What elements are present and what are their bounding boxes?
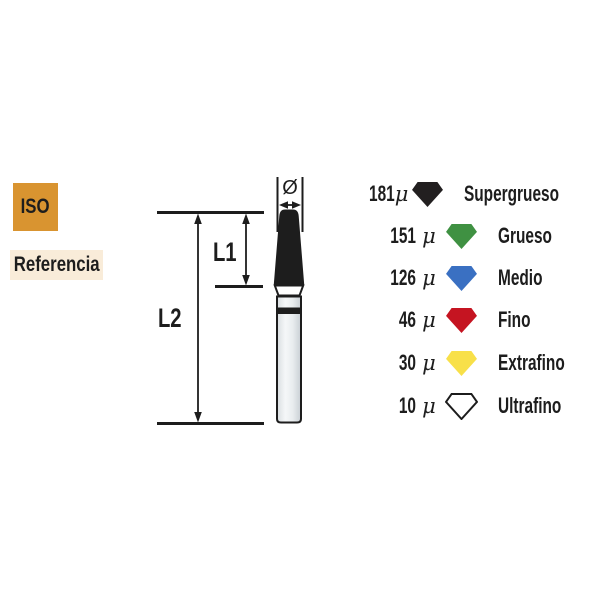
l2-dimension-label: L2 <box>145 303 195 334</box>
grit-label: Supergrueso <box>464 181 559 207</box>
grit-value: 151 <box>375 223 416 249</box>
grit-value: 46 <box>375 307 416 333</box>
legend-row-extrafino: 30 μ Extrafino <box>358 342 600 384</box>
bur-neck <box>275 286 303 296</box>
micron-unit: μ <box>416 308 442 332</box>
l1-dimension-label: L1 <box>200 237 250 268</box>
legend-row-ultrafino: 10 μ Ultrafino <box>358 385 600 427</box>
diamond-icon <box>445 265 478 292</box>
figure-canvas: ISO Referencia <box>0 0 600 600</box>
bur-shank-band <box>277 308 302 315</box>
diamond-icon <box>445 307 478 334</box>
bur-shank <box>277 297 301 423</box>
diamond-icon <box>411 181 444 208</box>
grit-label: Grueso <box>498 223 552 249</box>
legend-row-grueso: 151 μ Grueso <box>358 215 600 257</box>
grit-label: Medio <box>498 265 542 291</box>
legend-row-fino: 46 μ Fino <box>358 299 600 341</box>
micron-unit: μ <box>416 266 442 290</box>
diamond-icon <box>445 350 478 377</box>
micron-unit: μ <box>416 351 442 375</box>
micron-unit: μ <box>416 224 442 248</box>
grit-value: 30 <box>375 350 416 376</box>
micron-unit: μ <box>416 394 442 418</box>
micron-unit: μ <box>395 182 409 206</box>
legend-row-medio: 126 μ Medio <box>358 257 600 299</box>
diameter-symbol-label: Ø <box>277 177 303 200</box>
grit-value: 181 <box>369 181 395 207</box>
grit-value: 126 <box>375 265 416 291</box>
diamond-icon <box>445 393 478 420</box>
grit-label: Fino <box>498 307 531 333</box>
diamond-icon <box>445 223 478 250</box>
grit-value: 10 <box>375 393 416 419</box>
legend-row-supergrueso: 181 μ Supergrueso <box>358 173 600 215</box>
grit-label: Ultrafino <box>498 393 561 419</box>
diameter-arrow <box>279 201 301 208</box>
grit-label: Extrafino <box>498 350 565 376</box>
